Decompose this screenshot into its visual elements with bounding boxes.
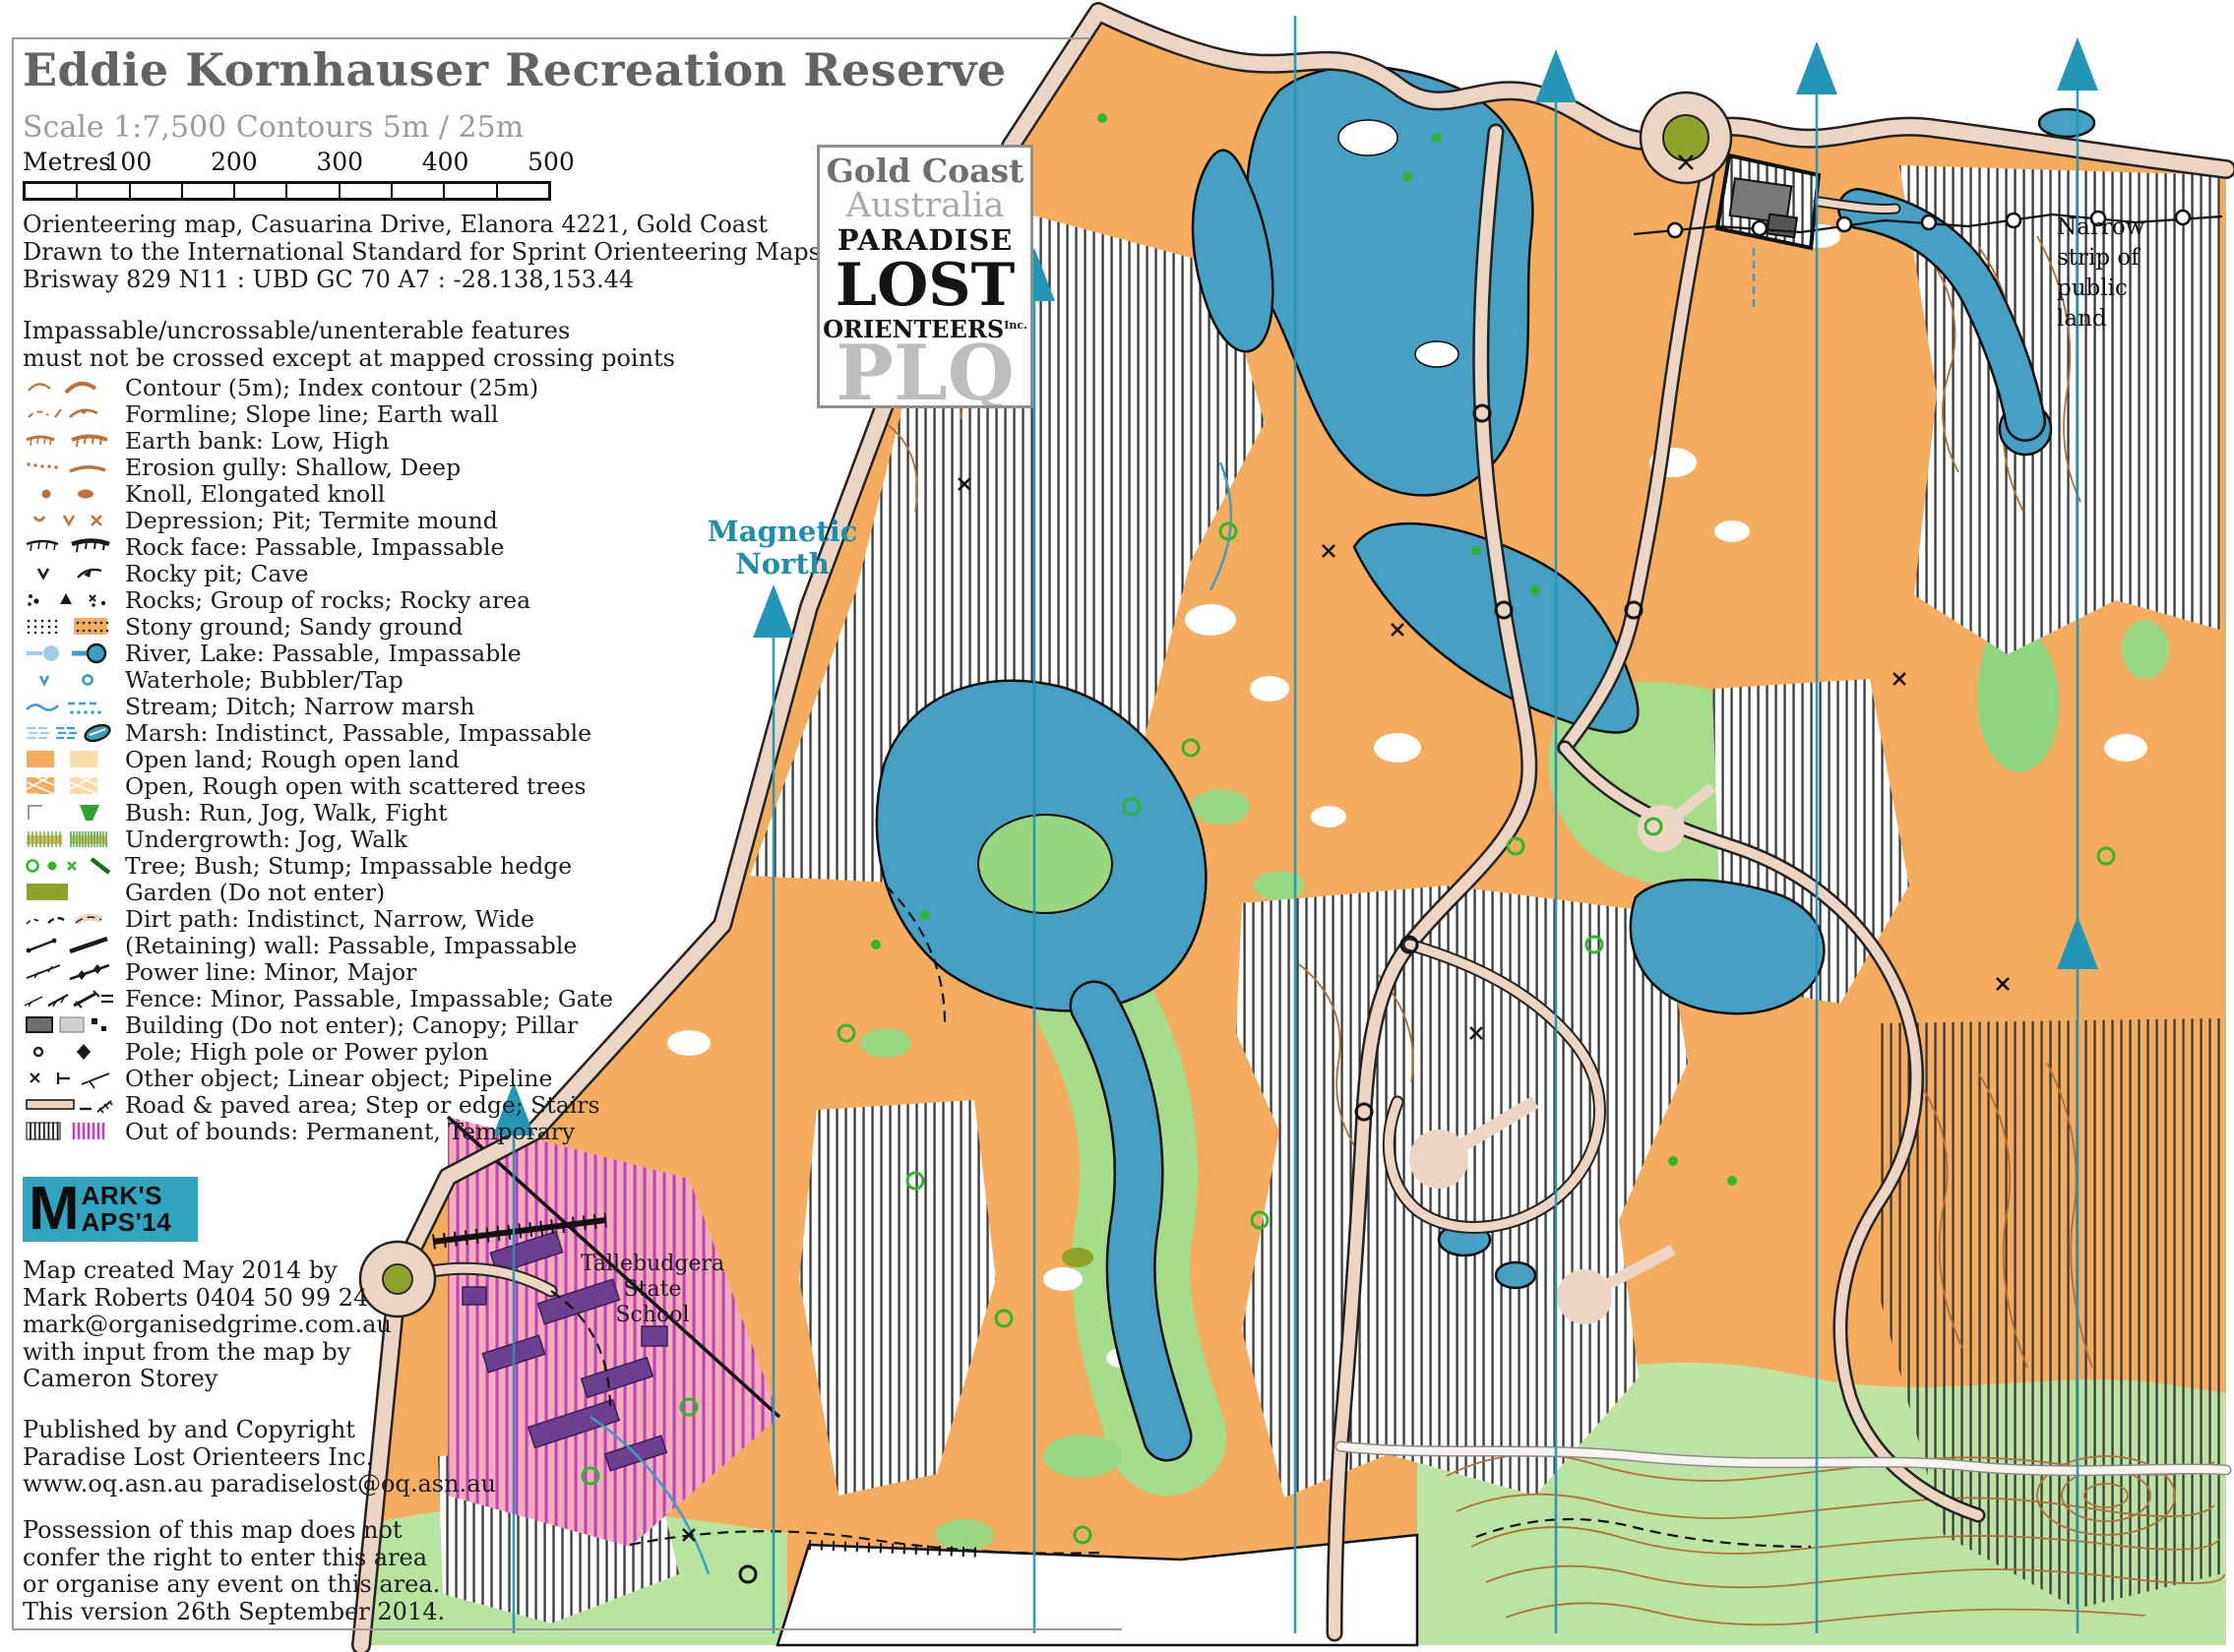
scalebar-labels: Metres100200300400500 — [23, 148, 574, 175]
disclaimer-line: or organise any event on this area. — [23, 1571, 445, 1599]
frame-top — [12, 37, 1090, 39]
legend-item: Knoll, Elongated knoll — [23, 480, 613, 507]
publisher-line: Published by and Copyright — [23, 1417, 496, 1444]
legend-item: Rocks; Group of rocks; Rocky area — [23, 586, 613, 613]
fence-icon — [23, 986, 117, 1011]
scalebar-tick: 200 — [211, 148, 258, 176]
stream-icon — [23, 694, 117, 719]
marks-logo-bottom: APS'14 — [82, 1209, 172, 1236]
legend-item-label: Road & paved area; Step or edge; Stairs — [125, 1091, 600, 1119]
open-scattered-icon — [23, 773, 117, 799]
legend-item: Bush: Run, Jog, Walk, Fight — [23, 799, 613, 826]
scalebar-tick: 100 — [105, 148, 153, 176]
legend-item-label: Knoll, Elongated knoll — [125, 480, 385, 508]
legend-item: Road & paved area; Step or edge; Stairs — [23, 1091, 613, 1118]
legend-item: Out of bounds: Permanent, Temporary — [23, 1118, 613, 1144]
legend-item-label: Stony ground; Sandy ground — [125, 613, 463, 641]
legend-item-label: Fence: Minor, Passable, Impassable; Gate — [125, 985, 613, 1012]
scalebar-cell — [393, 184, 445, 198]
bush-icon — [23, 800, 117, 826]
marks-maps-logo: M ARK'S APS'14 — [23, 1177, 198, 1242]
legend-item: Building (Do not enter); Canopy; Pillar — [23, 1011, 613, 1038]
garden-icon — [23, 880, 117, 905]
building-icon — [23, 1012, 117, 1038]
rocks-icon — [23, 587, 117, 613]
legend-item-label: Open, Rough open with scattered trees — [125, 772, 587, 800]
legend-item-label: Erosion gully: Shallow, Deep — [125, 454, 461, 481]
legend-item: Tree; Bush; Stump; Impassable hedge — [23, 852, 613, 879]
scale-line: Scale 1:7,500 Contours 5m / 25m — [23, 110, 524, 145]
legend-item: (Retaining) wall: Passable, Impassable — [23, 932, 613, 958]
legend-item-label: Garden (Do not enter) — [125, 879, 385, 906]
magnetic-north-label: Magnetic North — [689, 516, 876, 581]
open-land-icon — [23, 747, 117, 772]
legend-item: Rock face: Passable, Impassable — [23, 533, 613, 560]
wall-icon — [23, 933, 117, 958]
publisher-line: www.oq.asn.au paradiselost@oq.asn.au — [23, 1471, 496, 1499]
note-line: must not be crossed except at mapped cro… — [23, 344, 675, 372]
marks-logo-m: M — [29, 1182, 80, 1237]
pole-icon — [23, 1039, 117, 1065]
dirt-path-icon — [23, 906, 117, 932]
legend-list: Contour (5m); Index contour (25m)Formlin… — [23, 374, 613, 1144]
scalebar-cell — [498, 184, 548, 198]
legend-item-label: Out of bounds: Permanent, Temporary — [125, 1118, 575, 1145]
publisher-block: Published by and Copyright Paradise Lost… — [23, 1417, 496, 1499]
credits-line: with input from the map by — [23, 1339, 392, 1367]
knoll-icon — [23, 481, 117, 507]
marsh-icon — [23, 720, 117, 746]
credits-line: mark@organisedgrime.com.au — [23, 1312, 392, 1339]
club-logo-australia: Australia — [820, 189, 1030, 223]
legend-item: Erosion gully: Shallow, Deep — [23, 454, 613, 480]
public-land-label: Narrow strip of public land — [2057, 213, 2165, 335]
map-sheet: Eddie Kornhauser Recreation Reserve Scal… — [0, 0, 2234, 1652]
legend-item-label: Other object; Linear object; Pipeline — [125, 1065, 552, 1092]
river-lake-icon — [23, 641, 117, 666]
club-logo: Gold Coast Australia PARADISE LOST ORIEN… — [817, 145, 1033, 408]
depression-icon — [23, 508, 117, 533]
disclaimer-line: Possession of this map does not — [23, 1517, 445, 1545]
legend-item-label: Formline; Slope line; Earth wall — [125, 400, 498, 428]
legend-item: Depression; Pit; Termite mound — [23, 507, 613, 533]
legend-item-label: Rock face: Passable, Impassable — [125, 533, 504, 561]
legend-item-label: Open land; Rough open land — [125, 746, 460, 773]
disclaimer-line: confer the right to enter this area — [23, 1545, 445, 1572]
legend-item-label: River, Lake: Passable, Impassable — [125, 640, 522, 667]
legend-item: Dirt path: Indistinct, Narrow, Wide — [23, 905, 613, 932]
scalebar-cell — [183, 184, 235, 198]
formline-icon — [23, 401, 117, 427]
scalebar-cell — [235, 184, 287, 198]
legend-item-label: Marsh: Indistinct, Passable, Impassable — [125, 719, 591, 747]
out-of-bounds-icon — [23, 1119, 117, 1144]
legend-item-label: Rocky pit; Cave — [125, 560, 309, 587]
legend-item-label: Bush: Run, Jog, Walk, Fight — [125, 799, 448, 826]
club-logo-lost: LOST — [820, 256, 1030, 315]
earth-bank-icon — [23, 428, 117, 454]
page-title: Eddie Kornhauser Recreation Reserve — [23, 43, 1007, 96]
legend-item-label: Dirt path: Indistinct, Narrow, Wide — [125, 905, 534, 933]
legend-item: Undergrowth: Jog, Walk — [23, 826, 613, 852]
legend-item: Contour (5m); Index contour (25m) — [23, 374, 613, 400]
legend-item: Earth bank: Low, High — [23, 427, 613, 454]
disclaimer-block: Possession of this map does not confer t… — [23, 1517, 445, 1625]
legend-item: Waterhole; Bubbler/Tap — [23, 666, 613, 693]
legend-item-label: Waterhole; Bubbler/Tap — [125, 666, 403, 694]
legend-item-label: Earth bank: Low, High — [125, 427, 389, 455]
credits-line: Map created May 2014 by — [23, 1257, 392, 1285]
credits-line: Cameron Storey — [23, 1366, 392, 1393]
school-label: Tallebudgera State School — [569, 1252, 736, 1328]
stony-ground-icon — [23, 614, 117, 640]
scalebar-cell — [445, 184, 497, 198]
legend-item-label: Depression; Pit; Termite mound — [125, 507, 498, 534]
tree-icon — [23, 853, 117, 879]
road-icon — [23, 1092, 117, 1118]
waterhole-icon — [23, 667, 117, 693]
legend-item-label: Pole; High pole or Power pylon — [125, 1038, 488, 1066]
scalebar-tick: 300 — [316, 148, 363, 176]
legend-item: Pole; High pole or Power pylon — [23, 1038, 613, 1065]
rock-face-icon — [23, 534, 117, 560]
scalebar-cell — [26, 184, 78, 198]
erosion-gully-icon — [23, 455, 117, 480]
legend-item: Other object; Linear object; Pipeline — [23, 1065, 613, 1091]
impassable-note: Impassable/uncrossable/unenterable featu… — [23, 317, 675, 372]
scalebar-cell — [341, 184, 393, 198]
legend-item: Power line: Minor, Major — [23, 958, 613, 985]
note-line: Impassable/uncrossable/unenterable featu… — [23, 317, 675, 344]
scalebar-tick: 400 — [422, 148, 469, 176]
scalebar-cell — [131, 184, 183, 198]
scalebar-tick: 500 — [527, 148, 575, 176]
legend-item-label: Rocks; Group of rocks; Rocky area — [125, 586, 530, 614]
legend-item: Rocky pit; Cave — [23, 560, 613, 586]
scalebar-unit: Metres — [23, 148, 111, 176]
frame-bottom — [12, 1628, 1122, 1630]
disclaimer-line: This version 26th September 2014. — [23, 1599, 445, 1626]
club-logo-goldcoast: Gold Coast — [820, 154, 1030, 187]
legend-item-label: Building (Do not enter); Canopy; Pillar — [125, 1011, 578, 1039]
legend-item-label: Contour (5m); Index contour (25m) — [125, 374, 538, 401]
legend-item: Open, Rough open with scattered trees — [23, 772, 613, 799]
scalebar-cell — [78, 184, 130, 198]
legend-item: Stony ground; Sandy ground — [23, 613, 613, 640]
legend-item-label: Power line: Minor, Major — [125, 958, 416, 986]
scalebar-cell — [287, 184, 340, 198]
legend-item: Fence: Minor, Passable, Impassable; Gate — [23, 985, 613, 1011]
power-line-icon — [23, 959, 117, 985]
other-object-icon — [23, 1066, 117, 1091]
legend-item: Open land; Rough open land — [23, 746, 613, 772]
legend-item-label: (Retaining) wall: Passable, Impassable — [125, 932, 577, 959]
legend-item-label: Tree; Bush; Stump; Impassable hedge — [125, 852, 572, 880]
contour-icon — [23, 375, 117, 400]
legend-item-label: Undergrowth: Jog, Walk — [125, 826, 407, 853]
legend-item: River, Lake: Passable, Impassable — [23, 640, 613, 666]
credits-block: Map created May 2014 by Mark Roberts 040… — [23, 1257, 392, 1393]
legend-item: Marsh: Indistinct, Passable, Impassable — [23, 719, 613, 746]
legend-item: Stream; Ditch; Narrow marsh — [23, 693, 613, 719]
frame-left — [12, 37, 14, 1630]
scalebar — [23, 181, 551, 201]
club-logo-plq: PLQ — [820, 341, 1030, 406]
marks-logo-top: ARK'S — [82, 1183, 172, 1209]
publisher-line: Paradise Lost Orienteers Inc. — [23, 1444, 496, 1472]
rocky-pit-icon — [23, 561, 117, 586]
legend-item: Formline; Slope line; Earth wall — [23, 400, 613, 427]
legend-item-label: Stream; Ditch; Narrow marsh — [125, 693, 474, 720]
legend-item: Garden (Do not enter) — [23, 879, 613, 905]
undergrowth-icon — [23, 826, 117, 852]
credits-line: Mark Roberts 0404 50 99 24 — [23, 1285, 392, 1313]
